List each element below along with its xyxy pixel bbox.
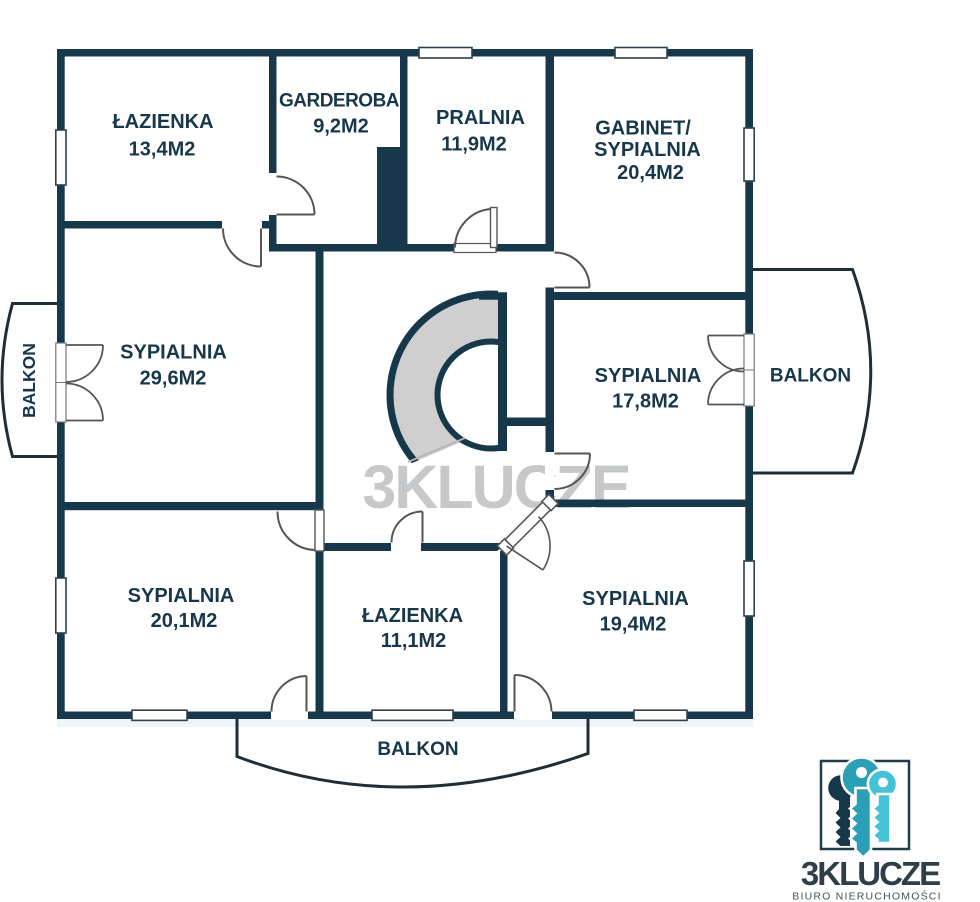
svg-text:17,8M2: 17,8M2 — [612, 391, 679, 413]
svg-text:GARDEROBA: GARDEROBA — [279, 91, 400, 112]
svg-text:GABINET/: GABINET/ — [595, 118, 691, 140]
svg-text:BALKON: BALKON — [19, 343, 39, 418]
svg-text:3KLUCZE: 3KLUCZE — [801, 855, 940, 892]
svg-text:3KLUCZE: 3KLUCZE — [362, 453, 630, 521]
svg-text:13,4M2: 13,4M2 — [129, 139, 196, 161]
svg-text:ŁAZIENKA: ŁAZIENKA — [362, 605, 463, 627]
svg-text:SYPIALNIA: SYPIALNIA — [120, 342, 227, 364]
svg-text:9,2M2: 9,2M2 — [313, 116, 369, 138]
svg-text:11,9M2: 11,9M2 — [441, 134, 507, 156]
svg-text:19,4M2: 19,4M2 — [600, 614, 667, 636]
svg-text:BIURO NIERUCHOMOŚCI: BIURO NIERUCHOMOŚCI — [792, 890, 941, 902]
svg-text:SYPIALNIA: SYPIALNIA — [128, 585, 235, 607]
svg-text:ŁAZIENKA: ŁAZIENKA — [112, 111, 213, 133]
svg-text:29,6M2: 29,6M2 — [140, 368, 207, 390]
svg-text:20,1M2: 20,1M2 — [151, 610, 218, 632]
svg-text:SYPIALNIA: SYPIALNIA — [594, 139, 701, 161]
svg-text:PRALNIA: PRALNIA — [436, 107, 525, 129]
svg-text:BALKON: BALKON — [377, 739, 458, 760]
svg-text:20,4M2: 20,4M2 — [617, 162, 684, 184]
svg-text:SYPIALNIA: SYPIALNIA — [595, 365, 702, 387]
svg-text:11,1M2: 11,1M2 — [381, 630, 447, 652]
svg-text:BALKON: BALKON — [770, 366, 851, 387]
svg-text:SYPIALNIA: SYPIALNIA — [582, 588, 689, 610]
